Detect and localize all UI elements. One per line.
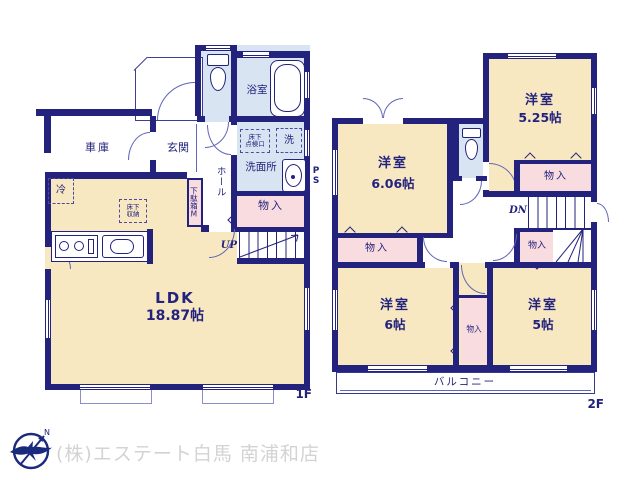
- window: [243, 51, 269, 58]
- wall-segment: [201, 225, 209, 232]
- wall-segment: [45, 338, 51, 390]
- wall-segment: [45, 269, 51, 300]
- wall-segment: [150, 116, 156, 132]
- wall-segment: [483, 53, 489, 162]
- ldk-size-label: 18.87帖: [110, 309, 240, 325]
- door-gap: [231, 125, 237, 155]
- room-b-double-door-arc: [363, 98, 383, 118]
- closet-b-label: 物入: [352, 243, 402, 254]
- window: [45, 300, 51, 338]
- floorplan-canvas: 冷 床下 収納 床下 点検口 洗 車庫 玄関 浴室 洗面所 ホール 下駄箱M 物…: [0, 0, 640, 480]
- room-a-size-label: 5.25帖: [500, 111, 580, 125]
- entrance-step-line: [196, 124, 197, 172]
- wall-segment: [459, 295, 487, 298]
- wall-segment: [44, 116, 51, 153]
- room-a-label: 洋室: [500, 94, 580, 109]
- wall-segment: [231, 45, 237, 125]
- window: [591, 88, 597, 114]
- underfloor-storage-label2: 収納: [127, 211, 140, 218]
- wall-segment: [237, 116, 310, 122]
- underfloor-hatch: 床下 点検口: [240, 129, 270, 153]
- room-d-size-label: 5帖: [503, 318, 583, 332]
- fridge-space: 冷: [48, 178, 74, 204]
- laundry-label: 洗: [284, 135, 294, 146]
- wall-segment: [332, 118, 338, 150]
- wall-segment: [45, 384, 80, 390]
- wall-segment: [332, 262, 425, 268]
- fridge-label: 冷: [56, 185, 66, 196]
- room-b-door-arc: [423, 237, 447, 262]
- wall-segment: [332, 330, 338, 370]
- closet-1f-label: 物入: [248, 200, 294, 212]
- window: [332, 290, 338, 330]
- shoe-cabinet-label: 下駄箱M: [189, 181, 197, 225]
- floor2-label: 2F: [576, 398, 604, 411]
- bath-label: 浴室: [238, 85, 276, 97]
- window: [206, 45, 230, 51]
- toilet-2f-door-arc: [460, 181, 482, 205]
- window: [368, 365, 427, 372]
- stove-burner: [59, 241, 69, 251]
- room-c-label: 洋室: [355, 299, 435, 314]
- stair-window-arc: [597, 203, 609, 222]
- ldk-label: LDK: [125, 290, 225, 307]
- wall-segment: [197, 116, 205, 122]
- wall-segment: [591, 114, 597, 202]
- wall-segment: [195, 45, 201, 116]
- wall-segment: [427, 365, 510, 372]
- bathtub-inner: [274, 64, 301, 112]
- company-name: (株)エステート白馬 南浦和店: [56, 444, 376, 465]
- sink-basin: [110, 239, 134, 254]
- floor1-label: 1F: [284, 388, 312, 401]
- wall-segment: [304, 330, 310, 390]
- toilet-tank: [207, 54, 229, 66]
- wall-segment: [417, 238, 423, 262]
- compass-n-label: N: [44, 428, 50, 437]
- stairs-1f-arrow: [237, 230, 304, 260]
- window: [591, 290, 597, 330]
- wall-segment: [36, 109, 152, 116]
- stove-grill: [88, 239, 94, 254]
- room-b-double-door-arc: [383, 98, 403, 118]
- wall-segment: [591, 330, 597, 370]
- underfloor-storage: 床下 収納: [119, 199, 147, 223]
- wall-segment: [591, 53, 597, 88]
- window: [304, 288, 310, 330]
- wall-segment: [332, 365, 368, 372]
- underfloor-hatch-label2: 点検口: [245, 141, 265, 148]
- wall-segment: [514, 164, 520, 191]
- balcony-inner-line: [340, 390, 591, 391]
- wall-segment: [229, 116, 237, 122]
- balcony-label: バルコニー: [417, 377, 513, 389]
- room-b-label: 洋室: [353, 157, 433, 172]
- room-c-size-label: 6帖: [355, 318, 435, 332]
- terrace: [80, 390, 152, 404]
- window: [510, 365, 567, 372]
- window: [508, 53, 556, 59]
- wall-segment: [487, 263, 493, 365]
- closet-d-label: 物入: [460, 326, 489, 336]
- garage-label: 車庫: [62, 142, 134, 154]
- closet-c-label: 物入: [521, 241, 553, 251]
- room-b-size-label: 6.06帖: [353, 177, 433, 191]
- wall-segment: [453, 118, 459, 181]
- closet-a-label: 物入: [531, 171, 581, 182]
- window: [332, 150, 338, 195]
- entrance-label: 玄関: [160, 142, 196, 154]
- washroom-label: 洗面所: [237, 162, 285, 174]
- stairs-2f-treads: [528, 197, 591, 228]
- toilet-2f-tank: [462, 128, 481, 138]
- washbasin-drain: [291, 175, 295, 179]
- compass-logo: N: [8, 427, 54, 473]
- wall-segment: [269, 51, 310, 58]
- stove-burner: [74, 241, 84, 251]
- terrace: [202, 390, 274, 404]
- window: [304, 130, 310, 156]
- wall-segment: [332, 195, 338, 290]
- pipe-space-label: PS: [311, 163, 321, 189]
- wall-segment: [150, 384, 203, 390]
- wall-segment: [567, 365, 597, 372]
- wall-segment: [591, 222, 597, 290]
- wall-segment: [403, 118, 489, 124]
- stairs-up-label: UP: [211, 240, 237, 251]
- laundry-space: 洗: [276, 128, 302, 153]
- stairs-dn-label: DN: [504, 205, 532, 216]
- room-d-label: 洋室: [503, 299, 583, 314]
- hall-label: ホール: [214, 160, 225, 204]
